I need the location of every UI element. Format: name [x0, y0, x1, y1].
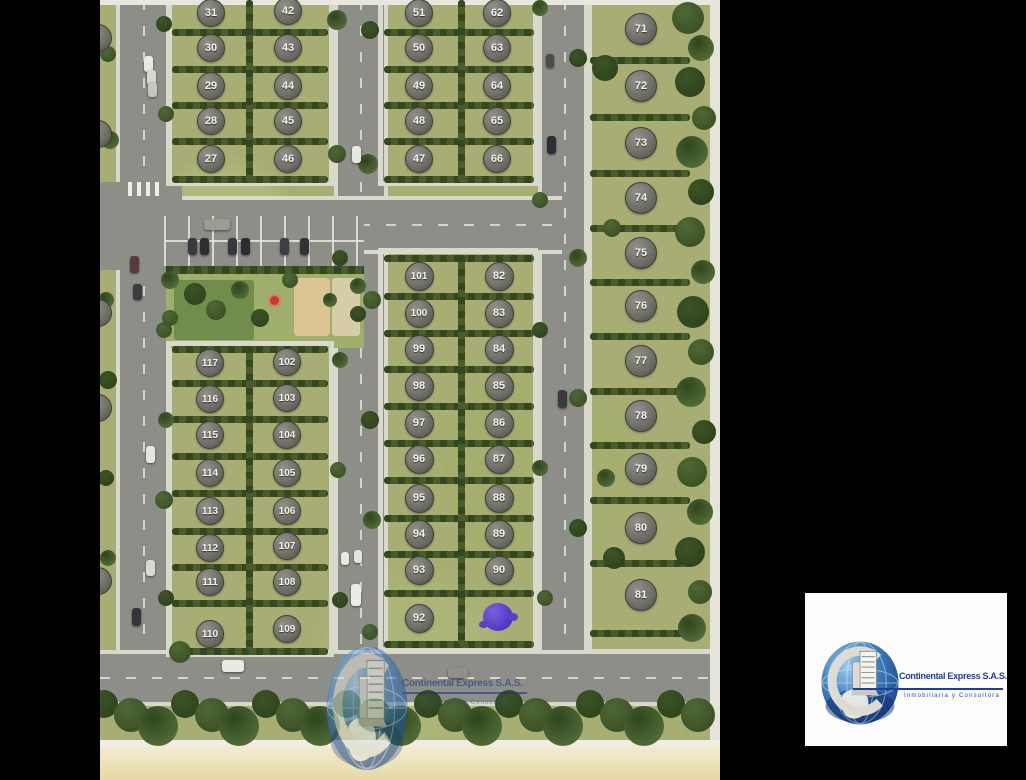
hedge	[590, 497, 690, 504]
watermark-globe-icon	[324, 642, 410, 774]
tree	[162, 310, 178, 326]
tree	[688, 339, 714, 365]
tree	[569, 519, 587, 537]
lot-31[interactable]: 31	[197, 0, 225, 27]
lot-108[interactable]: 108	[273, 568, 301, 596]
tree	[100, 550, 116, 566]
car	[133, 284, 142, 300]
lot-86[interactable]: 86	[485, 409, 514, 438]
tree	[672, 2, 704, 34]
tree	[569, 49, 587, 67]
tree	[543, 706, 583, 746]
tree	[158, 106, 174, 122]
tree	[332, 592, 348, 608]
crosswalk	[128, 182, 164, 196]
lot-43[interactable]: 43	[274, 34, 302, 62]
car	[130, 256, 139, 273]
tree	[231, 281, 249, 299]
lot-79[interactable]: 79	[625, 453, 657, 485]
lot-88[interactable]: 88	[485, 484, 514, 513]
tree	[569, 389, 587, 407]
hedge	[458, 255, 465, 645]
lot-112[interactable]: 112	[196, 534, 224, 562]
tree	[358, 154, 378, 174]
car	[280, 238, 289, 255]
tree	[688, 35, 714, 61]
tree	[603, 547, 625, 569]
car	[204, 219, 230, 230]
playground-slide	[268, 294, 281, 307]
tree	[282, 272, 298, 288]
car	[132, 608, 141, 626]
tree	[206, 300, 226, 320]
lot-84[interactable]: 84	[485, 335, 514, 364]
lot-104[interactable]: 104	[273, 421, 301, 449]
lot-46[interactable]: 46	[274, 145, 302, 173]
tree	[169, 641, 191, 663]
tree	[251, 309, 269, 327]
lot-75[interactable]: 75	[625, 237, 657, 269]
car	[148, 82, 157, 97]
logo-underline	[853, 688, 1003, 690]
tree	[332, 352, 348, 368]
lot-77[interactable]: 77	[625, 345, 657, 377]
watermark-title: Continental Express S.A.S.	[402, 678, 527, 694]
car	[352, 146, 361, 163]
car	[300, 238, 309, 255]
tree	[350, 306, 366, 322]
lot-92[interactable]: 92	[405, 604, 434, 633]
lot-76[interactable]: 76	[625, 290, 657, 322]
tree	[677, 296, 709, 328]
car	[146, 446, 155, 463]
lot-partial	[100, 567, 112, 595]
lot-62[interactable]: 62	[483, 0, 511, 27]
car	[241, 238, 250, 255]
tree	[678, 614, 706, 642]
hedge	[590, 279, 690, 286]
lot-101[interactable]: 101	[405, 262, 434, 291]
tree	[532, 0, 548, 16]
sold-lot-marker[interactable]	[483, 603, 513, 631]
lot-78[interactable]: 78	[625, 400, 657, 432]
tree	[675, 537, 705, 567]
tree	[688, 580, 712, 604]
lot-29[interactable]: 29	[197, 72, 225, 100]
lot-109[interactable]: 109	[273, 615, 301, 643]
lot-63[interactable]: 63	[483, 34, 511, 62]
lot-93[interactable]: 93	[405, 556, 434, 585]
hedge	[590, 442, 690, 449]
tree	[323, 293, 337, 307]
tree	[532, 460, 548, 476]
lot-100[interactable]: 100	[405, 299, 434, 328]
hedge	[590, 114, 690, 121]
tree	[363, 291, 381, 309]
tree	[692, 106, 716, 130]
tree	[532, 192, 548, 208]
car	[228, 238, 237, 255]
lot-114[interactable]: 114	[196, 459, 224, 487]
tree	[691, 260, 715, 284]
tree	[100, 470, 114, 486]
tree	[161, 271, 179, 289]
tree	[592, 55, 618, 81]
company-tagline: Inmobiliaria y Consultora	[901, 693, 1003, 699]
lot-102[interactable]: 102	[273, 348, 301, 376]
lot-partial	[100, 394, 112, 422]
hedge	[458, 0, 465, 182]
lot-48[interactable]: 48	[405, 107, 433, 135]
car	[354, 550, 362, 563]
tree	[688, 179, 714, 205]
car	[341, 552, 349, 565]
tree	[677, 457, 707, 487]
lot-107[interactable]: 107	[273, 532, 301, 560]
car	[546, 54, 554, 68]
hedge	[590, 333, 690, 340]
lot-85[interactable]: 85	[485, 372, 514, 401]
tree	[675, 67, 705, 97]
lot-82[interactable]: 82	[485, 262, 514, 291]
lot-89[interactable]: 89	[485, 520, 514, 549]
company-globe-icon	[819, 639, 901, 727]
car	[222, 660, 244, 672]
car	[188, 238, 197, 255]
park-area	[166, 266, 364, 348]
tree	[537, 590, 553, 606]
lot-49[interactable]: 49	[405, 72, 433, 100]
tree	[361, 411, 379, 429]
lot-83[interactable]: 83	[485, 299, 514, 328]
tree	[569, 249, 587, 267]
lot-27[interactable]: 27	[197, 145, 225, 173]
lot-116[interactable]: 116	[196, 385, 224, 413]
tree	[532, 322, 548, 338]
tree	[676, 377, 706, 407]
tree	[603, 219, 621, 237]
company-logo: Continental Express S.A.S. Inmobiliaria …	[805, 593, 1007, 746]
lot-115[interactable]: 115	[196, 421, 224, 449]
lot-28[interactable]: 28	[197, 107, 225, 135]
tree	[624, 706, 664, 746]
lot-90[interactable]: 90	[485, 556, 514, 585]
car	[351, 584, 361, 606]
lot-64[interactable]: 64	[483, 72, 511, 100]
lot-99[interactable]: 99	[405, 335, 434, 364]
tree	[361, 21, 379, 39]
tree	[675, 217, 705, 247]
tree	[681, 698, 715, 732]
lot-45[interactable]: 45	[274, 107, 302, 135]
lot-65[interactable]: 65	[483, 107, 511, 135]
tree	[100, 371, 117, 389]
tree	[155, 491, 173, 509]
tree	[328, 145, 346, 163]
lot-117[interactable]: 117	[196, 349, 224, 377]
lot-110[interactable]: 110	[196, 620, 224, 648]
tree	[332, 250, 348, 266]
lot-73[interactable]: 73	[625, 127, 657, 159]
lot-95[interactable]: 95	[405, 484, 434, 513]
site-map: 3130292827424344454651504948476263646566…	[100, 0, 720, 780]
tree	[330, 462, 346, 478]
lot-44[interactable]: 44	[274, 72, 302, 100]
tree	[597, 469, 615, 487]
lot-80[interactable]: 80	[625, 512, 657, 544]
tree	[692, 420, 716, 444]
tree	[363, 511, 381, 529]
tree	[687, 499, 713, 525]
lot-30[interactable]: 30	[197, 34, 225, 62]
lot-97[interactable]: 97	[405, 409, 434, 438]
car	[547, 136, 556, 154]
lot-111[interactable]: 111	[196, 568, 224, 596]
tree	[158, 590, 174, 606]
tree	[350, 278, 366, 294]
lot-106[interactable]: 106	[273, 497, 301, 525]
watermark-logo: Continental Express S.A.S. Inmobiliaria …	[310, 636, 540, 780]
tree	[219, 706, 259, 746]
lot-81[interactable]: 81	[625, 579, 657, 611]
hedge	[246, 346, 253, 650]
lot-94[interactable]: 94	[405, 520, 434, 549]
company-name: Continental Express S.A.S.	[899, 671, 1003, 681]
tree	[676, 136, 708, 168]
park-hedge	[166, 266, 364, 274]
car	[558, 390, 567, 408]
hedge	[590, 388, 690, 395]
lot-50[interactable]: 50	[405, 34, 433, 62]
lot-47[interactable]: 47	[405, 145, 433, 173]
lot-113[interactable]: 113	[196, 497, 224, 525]
car	[200, 238, 209, 255]
tree	[138, 706, 178, 746]
lot-87[interactable]: 87	[485, 445, 514, 474]
lot-103[interactable]: 103	[273, 384, 301, 412]
hedge	[590, 170, 690, 177]
tree	[156, 16, 172, 32]
lot-66[interactable]: 66	[483, 145, 511, 173]
lot-105[interactable]: 105	[273, 459, 301, 487]
tree	[327, 10, 347, 30]
playground-sand	[294, 278, 330, 336]
tree	[158, 412, 174, 428]
watermark-subtitle: Inmobiliaria y Consultora	[408, 700, 520, 706]
hedge	[590, 630, 690, 637]
lot-74[interactable]: 74	[625, 182, 657, 214]
car	[146, 560, 155, 576]
lot-51[interactable]: 51	[405, 0, 433, 27]
hedge	[246, 0, 253, 182]
lot-96[interactable]: 96	[405, 445, 434, 474]
lot-98[interactable]: 98	[405, 372, 434, 401]
page-background: 3130292827424344454651504948476263646566…	[0, 0, 1026, 780]
tree	[184, 283, 206, 305]
lot-71[interactable]: 71	[625, 13, 657, 45]
lot-72[interactable]: 72	[625, 70, 657, 102]
